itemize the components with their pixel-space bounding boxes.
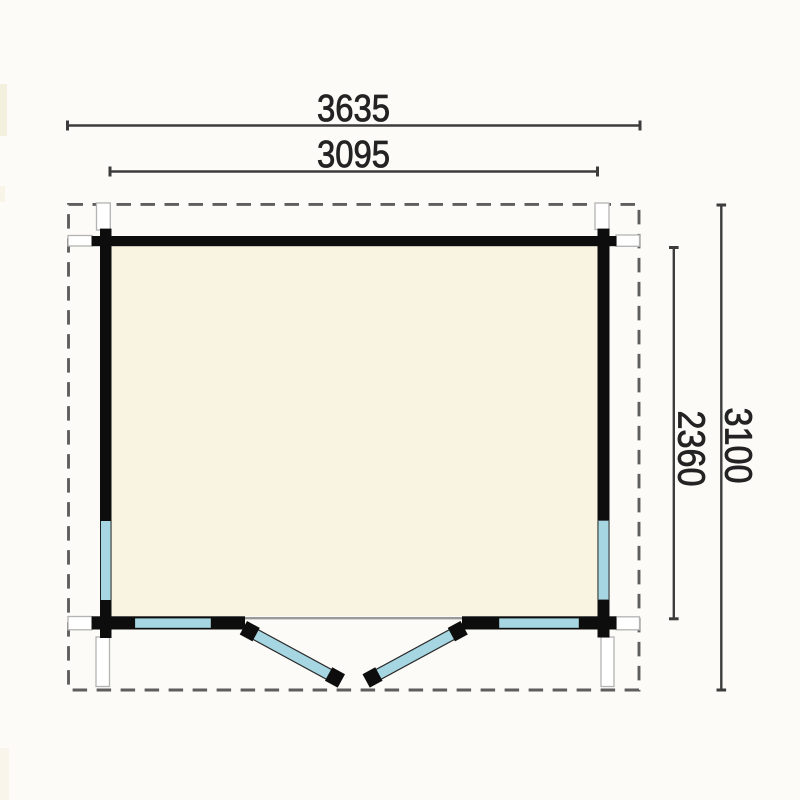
svg-text:3635: 3635 bbox=[317, 87, 390, 130]
svg-text:3100: 3100 bbox=[717, 407, 760, 483]
svg-text:2360: 2360 bbox=[670, 410, 713, 486]
svg-text:3095: 3095 bbox=[317, 133, 390, 176]
